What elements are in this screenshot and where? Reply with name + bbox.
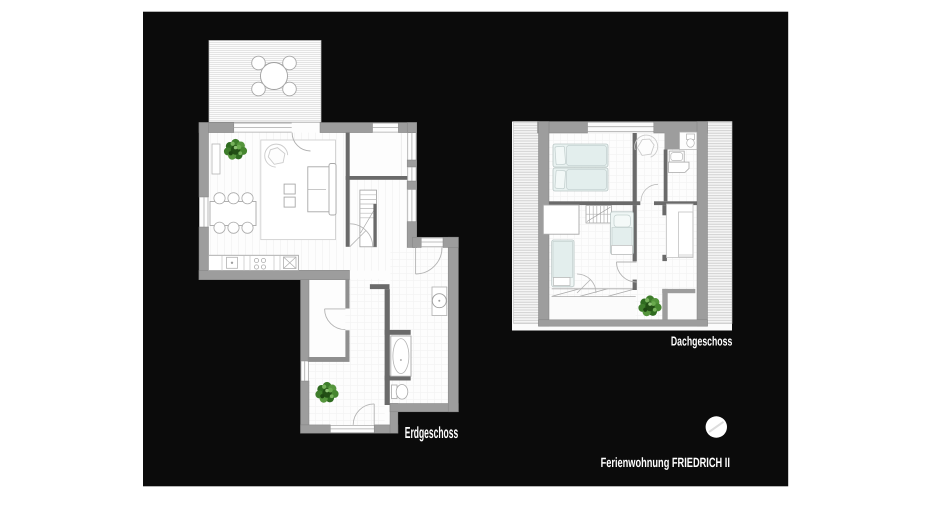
svg-text:Dachgeschoss: Dachgeschoss: [671, 333, 732, 348]
svg-text:Erdgeschoss: Erdgeschoss: [405, 425, 458, 442]
svg-text:Ferienwohnung FRIEDRICH II: Ferienwohnung FRIEDRICH II: [601, 455, 730, 470]
